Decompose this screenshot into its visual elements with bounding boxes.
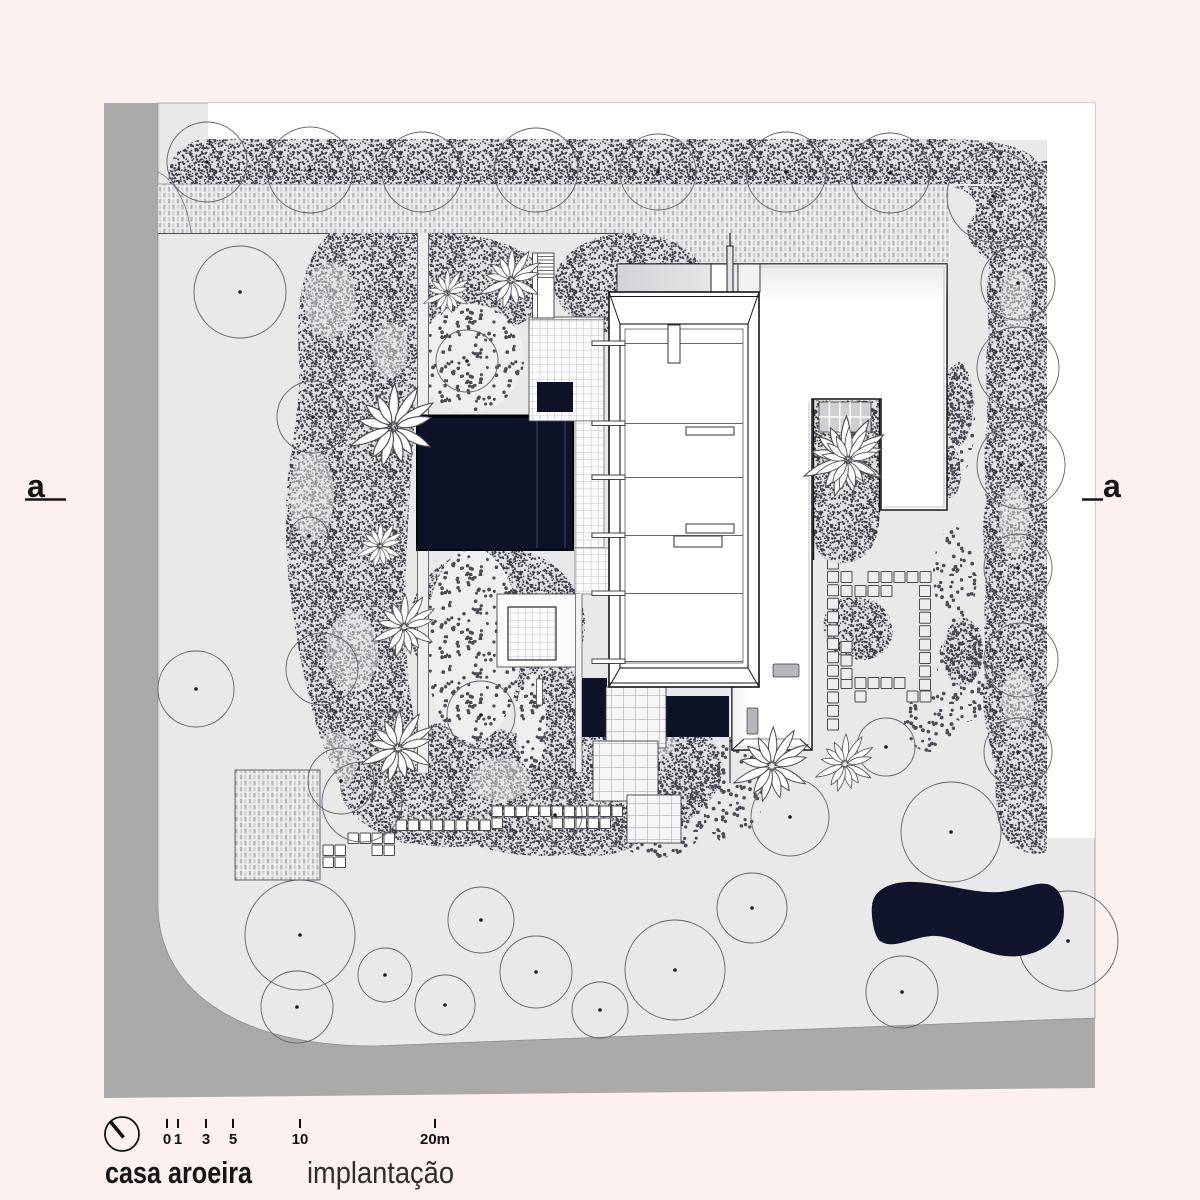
svg-text:a: a: [1103, 468, 1121, 504]
svg-text:casa aroeira: casa aroeira: [105, 1155, 253, 1190]
svg-text:1: 1: [174, 1131, 182, 1148]
svg-text:implantação: implantação: [307, 1155, 454, 1190]
svg-text:0: 0: [163, 1131, 171, 1148]
svg-text:3: 3: [202, 1131, 210, 1148]
svg-text:20m: 20m: [420, 1131, 450, 1148]
svg-text:5: 5: [229, 1131, 237, 1148]
svg-text:10: 10: [292, 1131, 309, 1148]
